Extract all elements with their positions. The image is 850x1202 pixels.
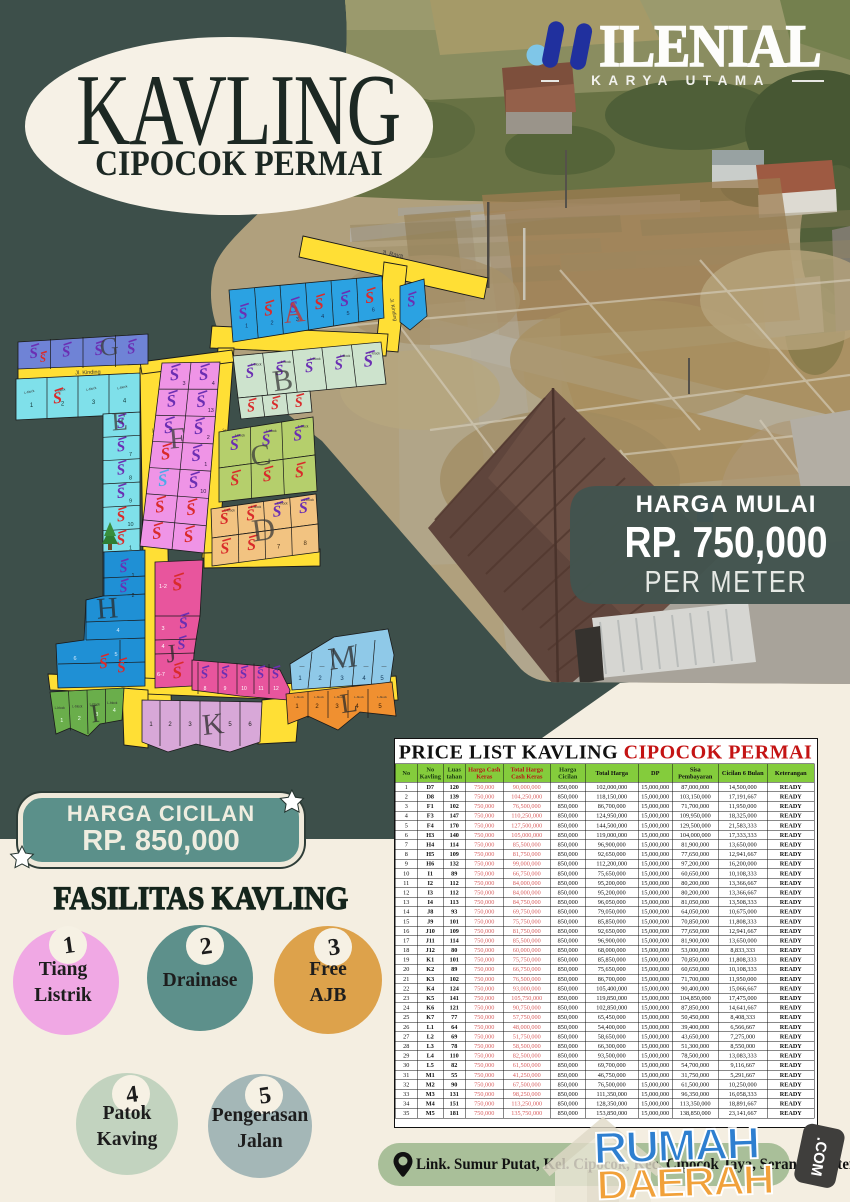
svg-text:L-block: L-block	[298, 424, 309, 428]
svg-text:Drainase: Drainase	[163, 970, 238, 991]
svg-text:L-block: L-block	[277, 501, 288, 505]
svg-text:1: 1	[204, 462, 207, 468]
svg-text:L-block: L-block	[266, 429, 277, 433]
svg-text:L-block: L-block	[377, 695, 387, 699]
svg-text:L-block: L-block	[304, 498, 315, 502]
svg-text:L-block: L-block	[251, 505, 262, 509]
svg-text:L-block: L-block	[107, 701, 118, 705]
svg-text:5: 5	[346, 311, 349, 317]
svg-text:S: S	[304, 360, 314, 377]
svg-text:Listrik: Listrik	[34, 985, 92, 1006]
svg-text:4: 4	[161, 644, 164, 650]
svg-text:6-7: 6-7	[157, 672, 165, 678]
svg-text:—: —	[320, 664, 325, 670]
svg-text:A: A	[282, 295, 307, 330]
svg-text:H: H	[95, 591, 119, 625]
svg-text:G: G	[99, 331, 120, 362]
svg-text:L-block: L-block	[314, 695, 324, 699]
svg-text:4: 4	[116, 628, 119, 634]
svg-text:6: 6	[372, 308, 375, 314]
svg-text:S: S	[219, 510, 230, 528]
svg-text:9: 9	[224, 686, 227, 692]
svg-text:10: 10	[200, 489, 206, 495]
svg-text:8: 8	[204, 686, 207, 692]
svg-text:S: S	[294, 464, 305, 482]
svg-text:S: S	[245, 365, 255, 382]
svg-text:L-block: L-block	[310, 357, 321, 361]
svg-text:1: 1	[60, 718, 63, 724]
svg-text:M: M	[326, 637, 359, 677]
svg-text:S: S	[229, 472, 240, 490]
svg-text:L-block: L-block	[72, 704, 83, 708]
svg-text:4: 4	[212, 381, 215, 387]
svg-text:S: S	[298, 499, 309, 517]
svg-text:Tiang: Tiang	[39, 959, 88, 980]
svg-text:D: D	[250, 510, 278, 549]
svg-text:2: 2	[78, 716, 81, 722]
svg-text:S: S	[292, 427, 303, 445]
svg-text:1-2: 1-2	[159, 584, 167, 590]
svg-text:S: S	[220, 540, 231, 558]
svg-text:2: 2	[207, 435, 210, 441]
svg-text:L-block: L-block	[225, 509, 236, 513]
svg-text:F: F	[167, 421, 187, 455]
svg-text:Free: Free	[309, 959, 347, 980]
svg-text:9: 9	[129, 499, 132, 505]
svg-text:—: —	[382, 664, 387, 670]
svg-text:S: S	[334, 357, 344, 374]
svg-text:K: K	[201, 707, 226, 742]
svg-text:DAERAH: DAERAH	[596, 1157, 774, 1202]
svg-text:13: 13	[208, 408, 214, 414]
svg-text:3: 3	[183, 381, 186, 387]
svg-text:L-block: L-block	[55, 706, 66, 710]
svg-text:—: —	[364, 664, 369, 670]
svg-text:S: S	[229, 436, 240, 454]
svg-text:2: 2	[270, 320, 273, 326]
svg-text:3: 3	[161, 626, 164, 632]
svg-text:11: 11	[258, 686, 263, 692]
svg-text:L-block: L-block	[235, 434, 246, 438]
svg-text:8: 8	[129, 475, 132, 481]
svg-text:10: 10	[127, 522, 133, 528]
svg-text:4: 4	[321, 314, 324, 320]
svg-text:AJB: AJB	[310, 985, 347, 1006]
svg-text:6: 6	[73, 656, 76, 662]
svg-text:L-block: L-block	[340, 354, 351, 358]
svg-text:12: 12	[273, 686, 279, 692]
svg-text:5: 5	[114, 652, 117, 658]
svg-text:10: 10	[241, 686, 247, 692]
svg-text:4: 4	[113, 708, 116, 714]
svg-text:L-block: L-block	[251, 363, 262, 367]
svg-text:1: 1	[245, 323, 248, 329]
svg-text:L-block: L-block	[294, 695, 304, 699]
svg-text:L-block: L-block	[370, 351, 381, 355]
svg-text:E: E	[110, 407, 128, 437]
svg-text:7: 7	[129, 452, 132, 458]
svg-text:—: —	[300, 664, 305, 670]
svg-text:1: 1	[132, 573, 135, 579]
svg-text:2: 2	[132, 593, 135, 599]
